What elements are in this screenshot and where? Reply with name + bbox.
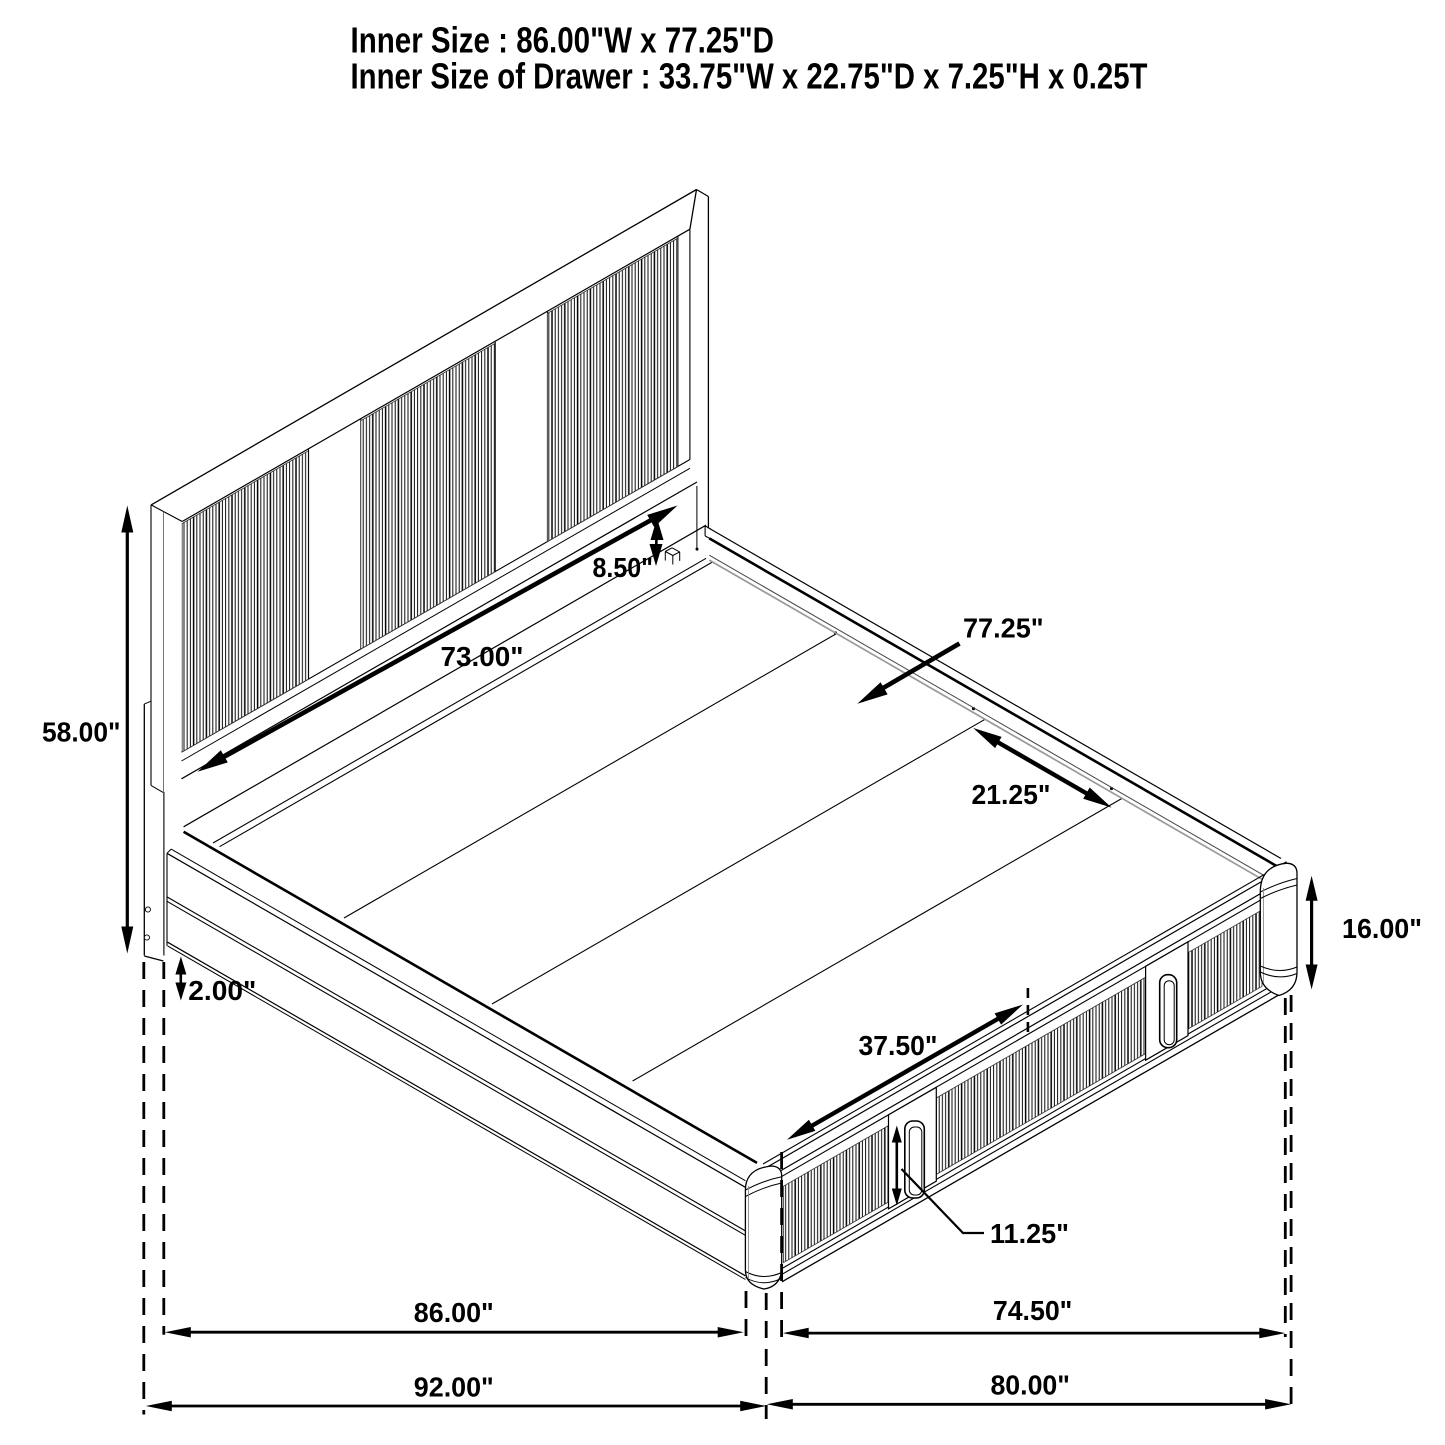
svg-text:11.25": 11.25" <box>990 1218 1069 1249</box>
svg-text:58.00": 58.00" <box>42 717 121 748</box>
svg-text:74.50": 74.50" <box>993 1295 1073 1326</box>
svg-text:77.25": 77.25" <box>963 613 1044 644</box>
svg-text:2.00": 2.00" <box>188 975 256 1006</box>
svg-text:86.00": 86.00" <box>414 1297 494 1328</box>
svg-text:16.00": 16.00" <box>1342 913 1422 944</box>
svg-text:80.00": 80.00" <box>990 1370 1070 1401</box>
svg-text:37.50": 37.50" <box>859 1030 938 1061</box>
svg-text:73.00": 73.00" <box>441 641 524 672</box>
svg-text:21.25": 21.25" <box>972 779 1051 810</box>
svg-text:Inner Size of Drawer : 33.75"W: Inner Size of Drawer : 33.75"W x 22.75"D… <box>351 56 1148 97</box>
svg-text:92.00": 92.00" <box>414 1372 494 1403</box>
svg-text:8.50": 8.50" <box>593 552 654 583</box>
svg-text:Inner Size : 86.00"W x 77.25"D: Inner Size : 86.00"W x 77.25"D <box>351 20 775 61</box>
